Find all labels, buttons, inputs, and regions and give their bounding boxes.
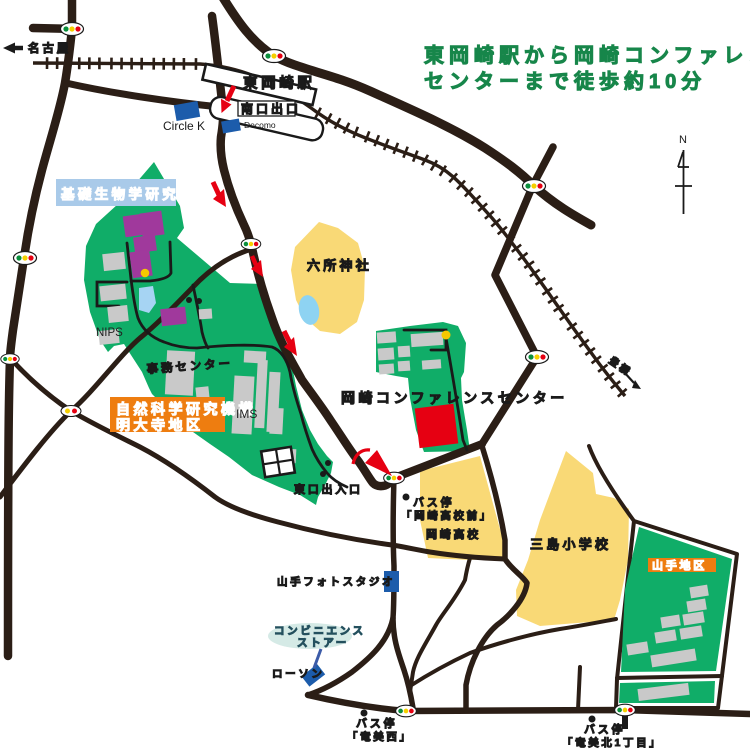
svg-text:IMS: IMS [236, 407, 257, 421]
svg-text:東口出入口: 東口出入口 [294, 482, 363, 496]
svg-text:明大寺地区: 明大寺地区 [116, 417, 204, 433]
svg-text:Circle K: Circle K [163, 119, 205, 133]
svg-text:バス停: バス停 [584, 722, 625, 736]
svg-text:コンビニエンス: コンビニエンス [274, 624, 366, 637]
svg-text:東岡崎駅: 東岡崎駅 [243, 74, 316, 92]
svg-text:岡崎高校: 岡崎高校 [426, 527, 481, 541]
svg-text:名古屋: 名古屋 [28, 41, 71, 55]
svg-text:センターまで徒歩約10分: センターまで徒歩約10分 [424, 69, 706, 93]
svg-text:バス停: バス停 [413, 495, 454, 509]
svg-text:N: N [679, 134, 687, 146]
svg-text:「岡崎高校前」: 「岡崎高校前」 [401, 509, 493, 522]
svg-text:岡崎コンファレンスセンター: 岡崎コンファレンスセンター [341, 390, 568, 406]
svg-text:「竜美西」: 「竜美西」 [347, 730, 413, 743]
svg-text:バス停: バス停 [356, 716, 397, 730]
svg-text:基礎生物学研究所: 基礎生物学研究所 [61, 186, 196, 202]
svg-text:Docomo: Docomo [244, 120, 276, 130]
svg-text:山手フォトスタジオ: 山手フォトスタジオ [277, 575, 395, 588]
svg-text:ローソン: ローソン [272, 668, 325, 680]
svg-text:ストアー: ストアー [297, 637, 349, 649]
svg-text:NIPS: NIPS [96, 327, 123, 339]
svg-text:南口出口: 南口出口 [241, 101, 301, 116]
svg-text:三島小学校: 三島小学校 [530, 537, 611, 552]
svg-text:「竜美北1丁目」: 「竜美北1丁目」 [562, 736, 662, 749]
svg-text:六所神社: 六所神社 [307, 258, 372, 273]
svg-text:山手地区: 山手地区 [652, 558, 707, 572]
svg-text:自然科学研究機構: 自然科学研究機構 [116, 401, 256, 417]
svg-text:東岡崎駅から岡崎コンファレンス: 東岡崎駅から岡崎コンファレンス [424, 43, 750, 67]
